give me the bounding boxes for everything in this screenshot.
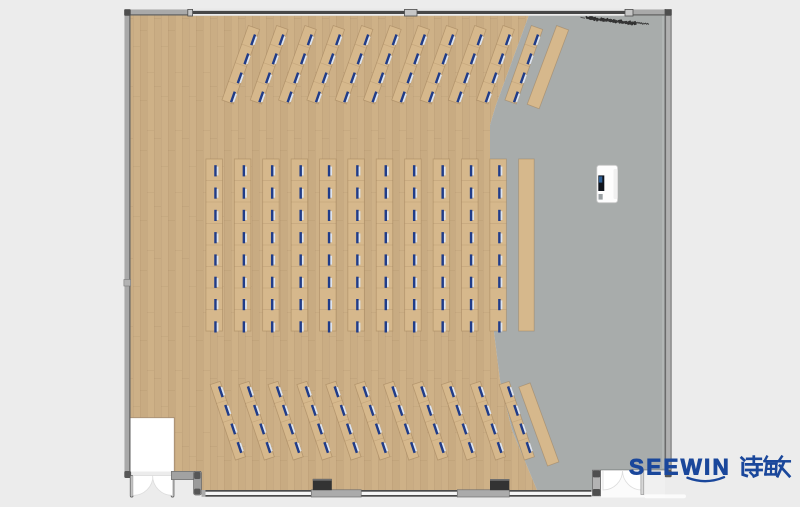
svg-text:SEEWIN: SEEWIN xyxy=(629,455,731,480)
